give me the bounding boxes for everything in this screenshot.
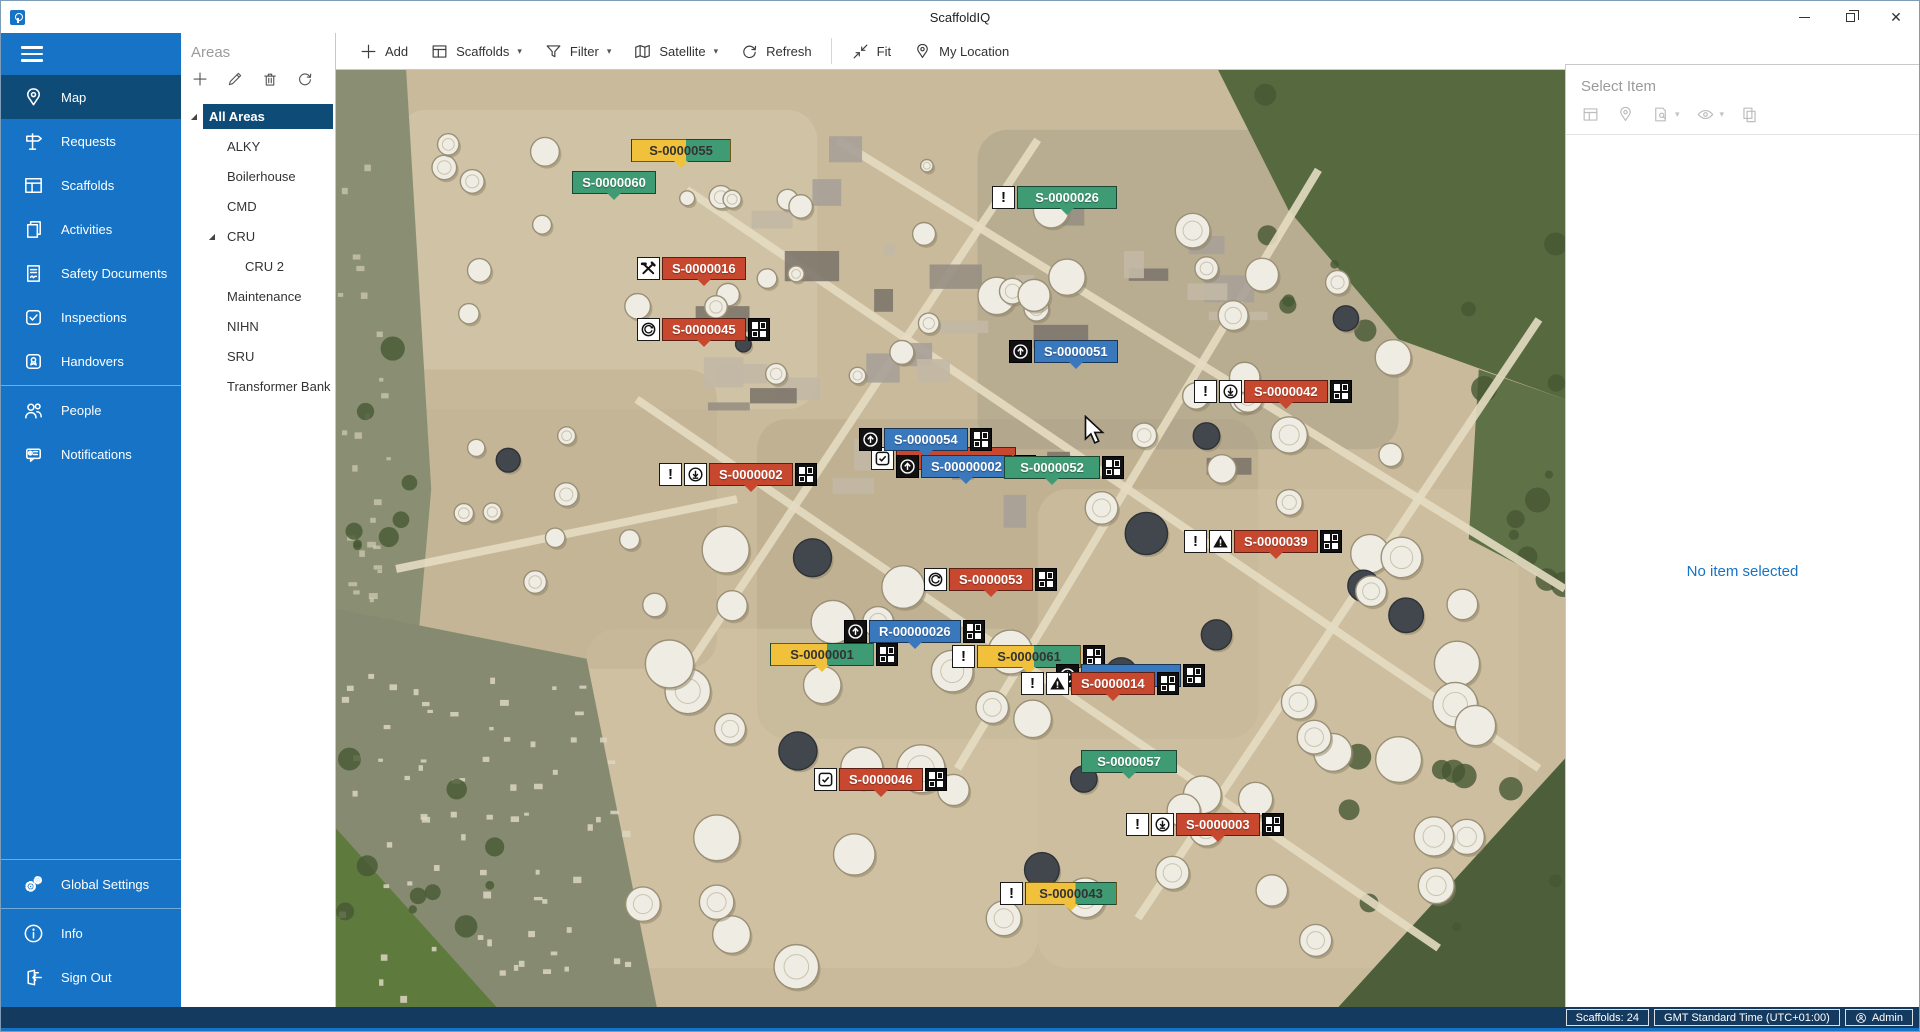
marker-label: R-00000026 bbox=[869, 620, 961, 643]
toolbar-add-button[interactable]: Add bbox=[348, 33, 419, 69]
detail-panel-toolbar: ▾▾ bbox=[1566, 97, 1919, 135]
marker-label: S-0000026 bbox=[1017, 186, 1117, 209]
app-window: ScaffoldIQ ✕ MapRequestsScaffoldsActivit… bbox=[0, 0, 1920, 1032]
marker-label: S-00000002 bbox=[921, 455, 1012, 478]
status-text: Admin bbox=[1872, 1012, 1903, 1024]
toolbar-button-label: My Location bbox=[939, 44, 1009, 59]
marker-tools-icon bbox=[637, 257, 660, 280]
detail-panel: Select Item ▾▾ No item selected bbox=[1565, 64, 1919, 1007]
table-icon bbox=[430, 42, 449, 61]
map-marker-s-0000046[interactable]: S-0000046 bbox=[814, 768, 947, 791]
refresh-icon bbox=[296, 75, 314, 92]
copy-icon bbox=[1740, 105, 1759, 124]
add-icon bbox=[191, 75, 209, 92]
sidebar-item-label: Safety Documents bbox=[61, 266, 167, 281]
tree-node-label: All Areas bbox=[203, 104, 333, 129]
marker-pointer bbox=[959, 477, 973, 484]
marker-pointer bbox=[984, 590, 998, 597]
detail-tool-eye-button[interactable]: ▾ bbox=[1696, 105, 1725, 124]
plus-icon bbox=[359, 42, 378, 61]
marker-pointer bbox=[1069, 362, 1083, 369]
signout-icon bbox=[21, 965, 45, 989]
sidebar-item-label: Notifications bbox=[61, 447, 132, 462]
areas-tree: ◢All AreasALKYBoilerhouseCMD◢CRUCRU 2Mai… bbox=[181, 101, 335, 1007]
marker-uparrow-icon bbox=[896, 455, 919, 478]
marker-label: S-0000043 bbox=[1025, 882, 1117, 905]
marker-label: S-0000045 bbox=[662, 318, 746, 341]
tree-node-label: Transformer Bank bbox=[221, 374, 335, 399]
foldmap-icon bbox=[633, 42, 652, 61]
tree-node-label: CRU 2 bbox=[239, 254, 333, 279]
status-admin[interactable]: Admin bbox=[1845, 1009, 1913, 1026]
sidebar-item-handovers[interactable]: Handovers bbox=[1, 339, 181, 383]
status-gmt-standard-time-utc-01-00[interactable]: GMT Standard Time (UTC+01:00) bbox=[1654, 1009, 1840, 1026]
expander-icon[interactable]: ◢ bbox=[203, 232, 221, 241]
map-canvas[interactable]: S-0000055S-0000060!S-0000026S-0000016S-0… bbox=[336, 70, 1565, 1007]
toolbar-button-label: Add bbox=[385, 44, 408, 59]
marker-grid-icon bbox=[748, 318, 770, 341]
marker-grid-icon bbox=[795, 463, 817, 486]
map-marker-s-0000054[interactable]: S-0000054 bbox=[859, 428, 992, 451]
map-marker-s-0000053[interactable]: S-0000053 bbox=[924, 568, 1057, 591]
detail-tool-map-pin-button[interactable] bbox=[1616, 105, 1635, 124]
tree-node-cmd[interactable]: CMD bbox=[181, 191, 335, 221]
tree-node-cru[interactable]: ◢CRU bbox=[181, 221, 335, 251]
marker-label: S-0000002 bbox=[709, 463, 793, 486]
toolbar-button-label: Fit bbox=[877, 44, 891, 59]
areas-edit-button[interactable] bbox=[226, 70, 244, 93]
map-marker-s-0000060[interactable]: S-0000060 bbox=[572, 171, 656, 194]
bubble-icon bbox=[21, 442, 45, 466]
signpost-icon bbox=[21, 129, 45, 153]
sidebar-footer: Global SettingsInfoSign Out bbox=[1, 857, 181, 1007]
toolbar-button-label: Scaffolds bbox=[456, 44, 509, 59]
map-toolbar: AddScaffolds▾Filter▾Satellite▾RefreshFit… bbox=[336, 33, 1565, 70]
map-marker-s-0000001[interactable]: S-0000001 bbox=[770, 643, 898, 666]
status-text: Scaffolds: 24 bbox=[1576, 1012, 1639, 1024]
marker-alert-icon: ! bbox=[1021, 672, 1044, 695]
table-icon bbox=[1581, 105, 1600, 124]
sidebar-item-activities[interactable]: Activities bbox=[1, 207, 181, 251]
sidebar-item-label: Global Settings bbox=[61, 877, 149, 892]
marker-alert-icon: ! bbox=[1184, 530, 1207, 553]
map-marker-s-0000057[interactable]: S-0000057 bbox=[1081, 750, 1177, 773]
sidebar-item-label: Handovers bbox=[61, 354, 124, 369]
marker-pointer bbox=[815, 665, 829, 672]
tree-node-boilerhouse[interactable]: Boilerhouse bbox=[181, 161, 335, 191]
document-icon bbox=[21, 261, 45, 285]
map-pin-icon bbox=[913, 42, 932, 61]
marker-pointer bbox=[1060, 208, 1074, 215]
sidebar-item-scaffolds[interactable]: Scaffolds bbox=[1, 163, 181, 207]
marker-grid-icon bbox=[876, 643, 898, 666]
sidebar-item-label: People bbox=[61, 403, 101, 418]
window-title: ScaffoldIQ bbox=[1, 10, 1919, 25]
sidebar-divider bbox=[1, 908, 181, 909]
docsearch-icon bbox=[1651, 105, 1670, 124]
marker-pointer bbox=[744, 485, 758, 492]
funnel-icon bbox=[544, 42, 563, 61]
marker-alert-icon: ! bbox=[1000, 882, 1023, 905]
marker-pointer bbox=[674, 161, 688, 168]
tree-node-label: NIHN bbox=[221, 314, 333, 339]
sidebar-item-label: Requests bbox=[61, 134, 116, 149]
tree-node-label: CMD bbox=[221, 194, 333, 219]
delete-icon bbox=[261, 75, 279, 92]
marker-pointer bbox=[1211, 835, 1225, 842]
marker-pointer bbox=[697, 279, 711, 286]
marker-grid-icon bbox=[1330, 380, 1352, 403]
marker-grid-icon bbox=[963, 620, 985, 643]
map-column: AddScaffolds▾Filter▾Satellite▾RefreshFit… bbox=[336, 33, 1565, 1007]
tree-node-sru[interactable]: SRU bbox=[181, 341, 335, 371]
toolbar-button-label: Refresh bbox=[766, 44, 812, 59]
sidebar-item-label: Info bbox=[61, 926, 83, 941]
marker-grid-icon bbox=[925, 768, 947, 791]
marker-label: S-0000053 bbox=[949, 568, 1033, 591]
sidebar-item-label: Activities bbox=[61, 222, 112, 237]
marker-uparrow-icon bbox=[859, 428, 882, 451]
map-marker-s-0000051[interactable]: S-0000051 bbox=[1009, 340, 1118, 363]
window-bottom-strip bbox=[1, 1028, 1919, 1031]
title-bar: ScaffoldIQ ✕ bbox=[1, 1, 1919, 33]
marker-download-icon bbox=[1219, 380, 1242, 403]
map-pin-icon bbox=[21, 85, 45, 109]
sidebar-item-label: Sign Out bbox=[61, 970, 112, 985]
marker-pointer bbox=[1279, 402, 1293, 409]
status-bar: Scaffolds: 24GMT Standard Time (UTC+01:0… bbox=[1, 1007, 1919, 1028]
areas-add-button[interactable] bbox=[191, 70, 209, 93]
sidebar-item-global-settings[interactable]: Global Settings bbox=[1, 862, 181, 906]
sidebar-item-info[interactable]: Info bbox=[1, 911, 181, 955]
marker-pointer bbox=[697, 340, 711, 347]
hamburger-icon bbox=[21, 46, 43, 62]
marker-label: S-0000054 bbox=[884, 428, 968, 451]
map-marker-s-0000055[interactable]: S-0000055 bbox=[631, 139, 731, 162]
areas-panel: Areas ◢All AreasALKYBoilerhouseCMD◢CRUCR… bbox=[181, 33, 336, 1007]
marker-alert-icon: ! bbox=[992, 186, 1015, 209]
sidebar-item-label: Scaffolds bbox=[61, 178, 114, 193]
no-item-selected-text: No item selected bbox=[1687, 563, 1799, 580]
marker-alert-icon: ! bbox=[1194, 380, 1217, 403]
fit-icon bbox=[851, 42, 870, 61]
marker-grid-icon bbox=[1157, 672, 1179, 695]
marker-refresh-icon bbox=[637, 318, 660, 341]
chevron-down-icon: ▾ bbox=[1720, 109, 1725, 120]
marker-uparrow-icon bbox=[844, 620, 867, 643]
marker-pointer bbox=[1122, 772, 1136, 779]
marker-label: S-0000001 bbox=[770, 643, 874, 666]
areas-toolbar bbox=[181, 63, 335, 101]
marker-warning-icon bbox=[1046, 672, 1069, 695]
map-marker-s-0000026[interactable]: !S-0000026 bbox=[992, 186, 1117, 209]
table-icon bbox=[21, 173, 45, 197]
marker-refresh-icon bbox=[924, 568, 947, 591]
toolbar-my-location-button[interactable]: My Location bbox=[902, 33, 1020, 69]
sidebar-item-notifications[interactable]: Notifications bbox=[1, 432, 181, 476]
marker-label: S-0000046 bbox=[839, 768, 923, 791]
tree-node-all-areas[interactable]: ◢All Areas bbox=[181, 101, 335, 131]
tree-node-label: ALKY bbox=[221, 134, 333, 159]
toolbar-fit-button[interactable]: Fit bbox=[840, 33, 902, 69]
chevron-down-icon: ▾ bbox=[714, 46, 719, 57]
badge-icon bbox=[21, 349, 45, 373]
marker-warning-icon bbox=[1209, 530, 1232, 553]
marker-grid-icon bbox=[1262, 813, 1284, 836]
people-icon bbox=[21, 398, 45, 422]
marker-label: S-0000060 bbox=[572, 171, 656, 194]
toolbar-scaffolds-button[interactable]: Scaffolds▾ bbox=[419, 33, 533, 69]
map-marker-s-0000016[interactable]: S-0000016 bbox=[637, 257, 746, 280]
eye-icon bbox=[1696, 105, 1715, 124]
sidebar-nav: MapRequestsScaffoldsActivitiesSafety Doc… bbox=[1, 75, 181, 476]
map-marker-s-0000039[interactable]: !S-0000039 bbox=[1184, 530, 1342, 553]
map-marker-s-0000002[interactable]: !S-0000002 bbox=[659, 463, 817, 486]
marker-label: S-0000051 bbox=[1034, 340, 1118, 363]
edit-icon bbox=[226, 75, 244, 92]
tree-node-label: Boilerhouse bbox=[221, 164, 333, 189]
marker-pointer bbox=[1064, 904, 1078, 911]
detail-tool-table-button[interactable] bbox=[1581, 105, 1600, 124]
marker-check-icon bbox=[814, 768, 837, 791]
marker-pointer bbox=[607, 193, 621, 200]
tree-node-alky[interactable]: ALKY bbox=[181, 131, 335, 161]
detail-tool-docsearch-button[interactable]: ▾ bbox=[1651, 105, 1680, 124]
areas-refresh-button[interactable] bbox=[296, 70, 314, 93]
chevron-down-icon: ▾ bbox=[607, 46, 612, 57]
marker-label: S-0000016 bbox=[662, 257, 746, 280]
marker-label: S-0000003 bbox=[1176, 813, 1260, 836]
map-marker-s-0000003[interactable]: !S-0000003 bbox=[1126, 813, 1284, 836]
map-pin-icon bbox=[1616, 105, 1635, 124]
sidebar-item-map[interactable]: Map bbox=[1, 75, 181, 119]
toolbar-refresh-button[interactable]: Refresh bbox=[729, 33, 823, 69]
map-marker-s-0000014[interactable]: !S-0000014 bbox=[1021, 672, 1179, 695]
marker-grid-icon bbox=[1102, 456, 1124, 479]
tree-node-label: SRU bbox=[221, 344, 333, 369]
status-text: GMT Standard Time (UTC+01:00) bbox=[1664, 1012, 1830, 1024]
main-area: MapRequestsScaffoldsActivitiesSafety Doc… bbox=[1, 33, 1919, 1007]
map-marker-s-0000043[interactable]: !S-0000043 bbox=[1000, 882, 1117, 905]
sidebar-item-label: Map bbox=[61, 90, 86, 105]
refresh-icon bbox=[740, 42, 759, 61]
marker-alert-icon: ! bbox=[952, 645, 975, 668]
mouse-cursor bbox=[1084, 415, 1108, 445]
checkbox-icon bbox=[21, 305, 45, 329]
marker-grid-icon bbox=[1320, 530, 1342, 553]
detail-panel-title: Select Item bbox=[1566, 65, 1919, 97]
sidebar-item-people[interactable]: People bbox=[1, 388, 181, 432]
marker-alert-icon: ! bbox=[1126, 813, 1149, 836]
toolbar-satellite-button[interactable]: Satellite▾ bbox=[622, 33, 729, 69]
hamburger-button[interactable] bbox=[1, 33, 181, 75]
map-marker-s-0000045[interactable]: S-0000045 bbox=[637, 318, 770, 341]
toolbar-button-label: Satellite bbox=[659, 44, 705, 59]
status-scaffolds-24[interactable]: Scaffolds: 24 bbox=[1566, 1009, 1649, 1026]
sidebar-divider bbox=[1, 859, 181, 860]
sidebar-item-requests[interactable]: Requests bbox=[1, 119, 181, 163]
toolbar-separator bbox=[831, 38, 832, 64]
tree-node-cru-2[interactable]: CRU 2 bbox=[181, 251, 335, 281]
tree-node-nihn[interactable]: NIHN bbox=[181, 311, 335, 341]
sidebar-item-safety-documents[interactable]: Safety Documents bbox=[1, 251, 181, 295]
marker-download-icon bbox=[684, 463, 707, 486]
tree-node-transformer-bank[interactable]: Transformer Bank bbox=[181, 371, 335, 401]
tree-node-label: Maintenance bbox=[221, 284, 333, 309]
marker-label: S-0000055 bbox=[631, 139, 731, 162]
map-marker-r-00000026[interactable]: R-00000026 bbox=[844, 620, 985, 643]
expander-icon[interactable]: ◢ bbox=[185, 112, 203, 121]
sidebar-item-sign-out[interactable]: Sign Out bbox=[1, 955, 181, 999]
marker-label: S-0000057 bbox=[1081, 750, 1177, 773]
marker-grid-icon bbox=[970, 428, 992, 451]
toolbar-button-label: Filter bbox=[570, 44, 599, 59]
marker-uparrow-icon bbox=[1009, 340, 1032, 363]
marker-label: S-0000014 bbox=[1071, 672, 1155, 695]
chevron-down-icon: ▾ bbox=[517, 46, 522, 57]
marker-download-icon bbox=[1151, 813, 1174, 836]
satellite-map bbox=[336, 70, 1565, 1007]
marker-grid-icon bbox=[1183, 664, 1205, 687]
areas-delete-button[interactable] bbox=[261, 70, 279, 93]
tree-node-maintenance[interactable]: Maintenance bbox=[181, 281, 335, 311]
info-icon bbox=[21, 921, 45, 945]
sidebar-item-inspections[interactable]: Inspections bbox=[1, 295, 181, 339]
sidebar-divider bbox=[1, 385, 181, 386]
gears-icon bbox=[21, 872, 45, 896]
chevron-down-icon: ▾ bbox=[1675, 109, 1680, 120]
sidebar-item-label: Inspections bbox=[61, 310, 127, 325]
marker-pointer bbox=[1269, 552, 1283, 559]
marker-pointer bbox=[1045, 478, 1059, 485]
marker-pointer bbox=[1106, 694, 1120, 701]
detail-panel-body: No item selected bbox=[1566, 135, 1919, 1007]
sidebar-spacer bbox=[1, 476, 181, 857]
marker-grid-icon bbox=[1035, 568, 1057, 591]
person-icon bbox=[1855, 1012, 1867, 1024]
areas-panel-title: Areas bbox=[181, 33, 335, 63]
map-marker-s-0000052[interactable]: S-0000052 bbox=[1004, 456, 1124, 479]
marker-label: S-0000052 bbox=[1004, 456, 1100, 479]
map-marker-s-0000042[interactable]: !S-0000042 bbox=[1194, 380, 1352, 403]
tree-node-label: CRU bbox=[221, 224, 333, 249]
marker-pointer bbox=[874, 790, 888, 797]
marker-pointer bbox=[908, 642, 922, 649]
copies-icon bbox=[21, 217, 45, 241]
marker-label: S-0000042 bbox=[1244, 380, 1328, 403]
toolbar-filter-button[interactable]: Filter▾ bbox=[533, 33, 622, 69]
sidebar: MapRequestsScaffoldsActivitiesSafety Doc… bbox=[1, 33, 181, 1007]
marker-alert-icon: ! bbox=[659, 463, 682, 486]
marker-label: S-0000039 bbox=[1234, 530, 1318, 553]
detail-tool-copy-button[interactable] bbox=[1740, 105, 1759, 124]
restore-icon bbox=[1846, 13, 1855, 22]
